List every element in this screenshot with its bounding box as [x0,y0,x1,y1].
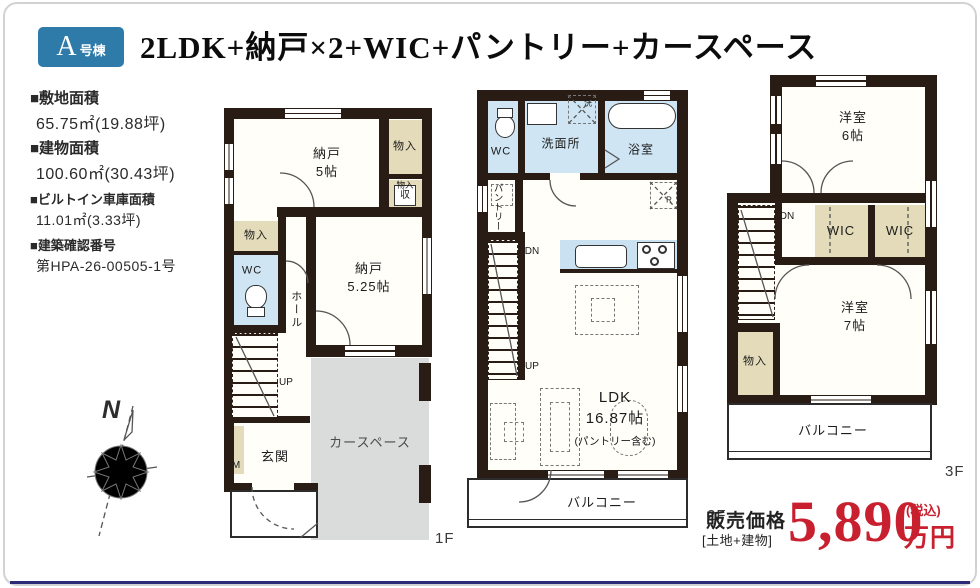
door-arc [877,265,911,299]
info-label: ■建築確認番号 [30,235,230,254]
stairs-diagonal [491,244,517,376]
floorplan-3f: 洋室 6帖 DN WIC WIC 物入 洋室 7帖 バルコニー 3F [715,65,980,490]
info-value: 65.75㎡(19.88坪) [36,110,230,134]
price-block: 販売価格 [土地+建物] 5,890 (税込) 万円 [698,496,973,566]
bottom-rule [10,581,970,584]
door-arc [286,261,308,283]
balcony-door-arc [519,470,551,502]
door-arc [821,161,853,193]
floorplan-2f: WC 洗面所 浴室 洗 パントリー DN UP R LDK 16.87帖 (パン… [455,70,745,540]
door-arc [316,311,350,345]
property-info: ■敷地面積 65.75㎡(19.88坪) ■建物面積 100.60㎡(30.43… [30,84,230,278]
stairs-diagonal [741,210,773,317]
door-arcs-overlay [222,85,457,560]
info-label: ■敷地面積 [30,87,230,108]
info-label: ■ビルトイン車庫面積 [30,189,230,208]
compass-rose-icon [71,398,181,543]
info-value: 11.01㎡(3.33坪) [36,210,230,230]
bath-door-mark [605,150,619,168]
floorplan-1f: 納戸 5帖 物入 物入 収 物入 WC 納戸 5.25帖 ホール UP M 玄関… [222,85,457,560]
door-arc [280,173,314,207]
unit-badge: A 号棟 [38,27,124,67]
door-arc [782,161,814,193]
price-unit: 万円 [904,518,956,554]
price-label: 販売価格 [706,506,786,533]
door-arcs-overlay [455,70,745,540]
info-value: 100.60㎡(30.43坪) [36,160,230,184]
page-title: 2LDK+納戸×2+WIC+パントリー+カースペース [140,22,817,67]
porch-corner-line [300,523,318,538]
unit-suffix: 号棟 [80,38,106,57]
flyer-page: A 号棟 2LDK+納戸×2+WIC+パントリー+カースペース ■敷地面積 65… [0,0,980,588]
price-tax-note: (税込) [906,500,941,519]
door-arc [775,265,809,299]
info-value: 第HPA-26-00505-1号 [36,256,230,276]
unit-letter: A [56,33,76,61]
info-label: ■建物面積 [30,137,230,158]
entrance-door-arc [252,487,294,529]
door-arc [550,180,576,206]
stairs-diagonal [236,337,274,416]
price-sublabel: [土地+建物] [702,530,772,549]
door-arcs-overlay [715,65,980,490]
